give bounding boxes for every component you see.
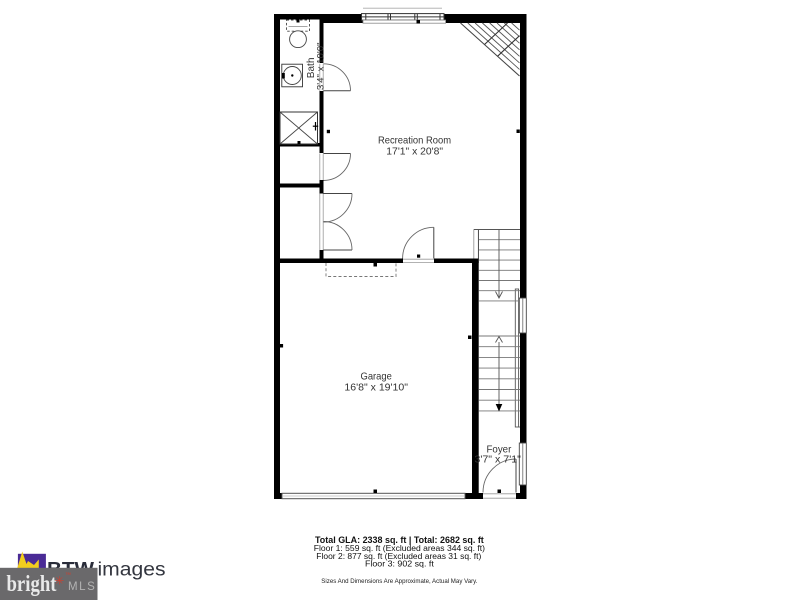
svg-text:Recreation Room: Recreation Room <box>378 136 451 147</box>
svg-text:Garage: Garage <box>361 371 393 382</box>
svg-text:Floor 3: 902 sq. ft: Floor 3: 902 sq. ft <box>365 559 434 569</box>
svg-text:✳: ✳ <box>55 576 65 588</box>
svg-text:17'1" x 20'8": 17'1" x 20'8" <box>386 146 443 157</box>
svg-text:images: images <box>98 560 166 581</box>
svg-text:bright: bright <box>7 571 57 596</box>
svg-text:MLS: MLS <box>68 581 96 593</box>
svg-text:™: ™ <box>65 572 71 579</box>
svg-text:Sizes And Dimensions Are Appro: Sizes And Dimensions Are Approximate, Ac… <box>321 578 477 585</box>
svg-text:3'7" x 7'1": 3'7" x 7'1" <box>474 455 521 466</box>
svg-text:3'4" x 10'0": 3'4" x 10'0" <box>315 43 325 91</box>
svg-text:16'8" x 19'10": 16'8" x 19'10" <box>344 383 408 394</box>
